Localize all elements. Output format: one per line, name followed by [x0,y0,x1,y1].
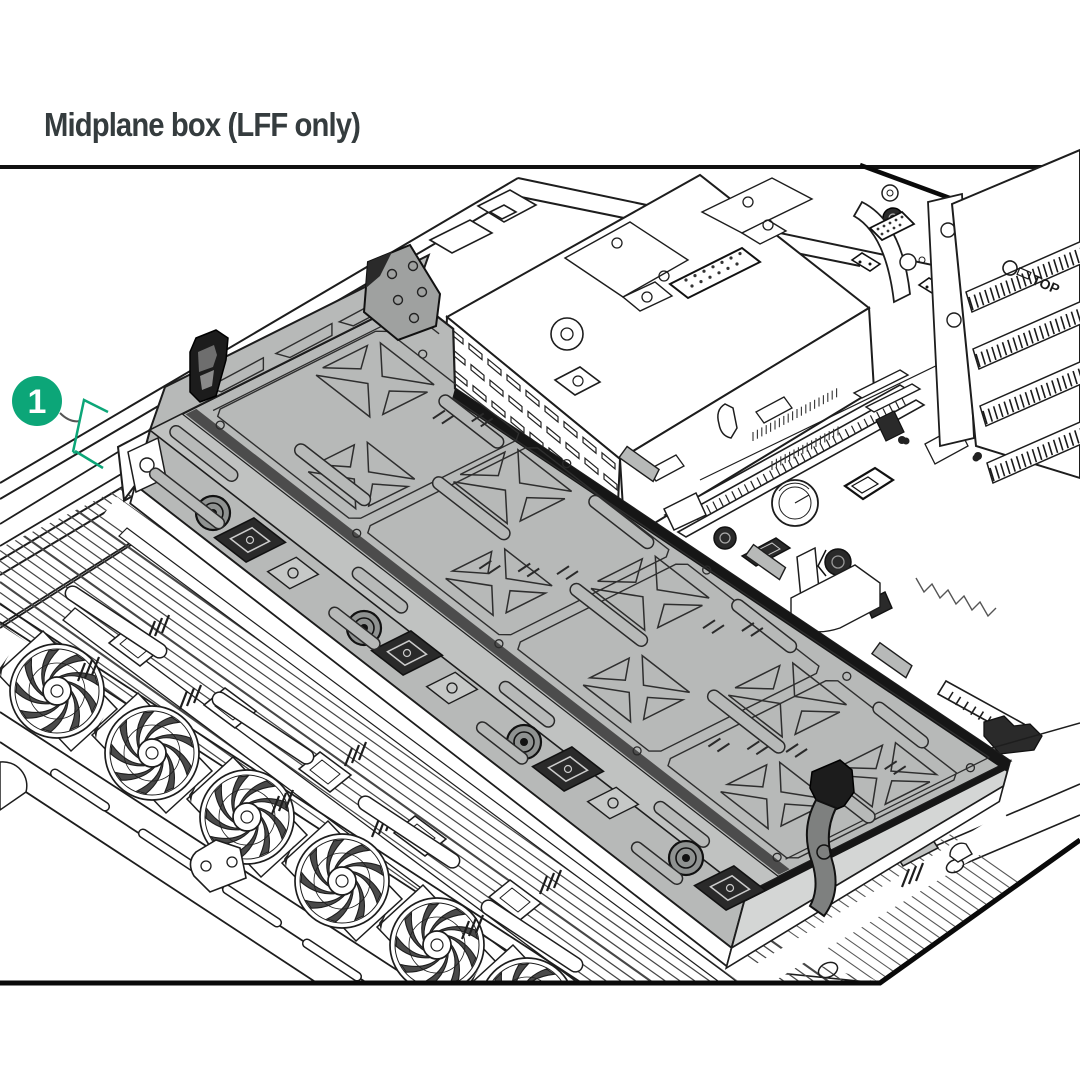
svg-text:Midplane box (LFF only): Midplane box (LFF only) [44,106,360,143]
svg-text:1: 1 [28,383,47,421]
